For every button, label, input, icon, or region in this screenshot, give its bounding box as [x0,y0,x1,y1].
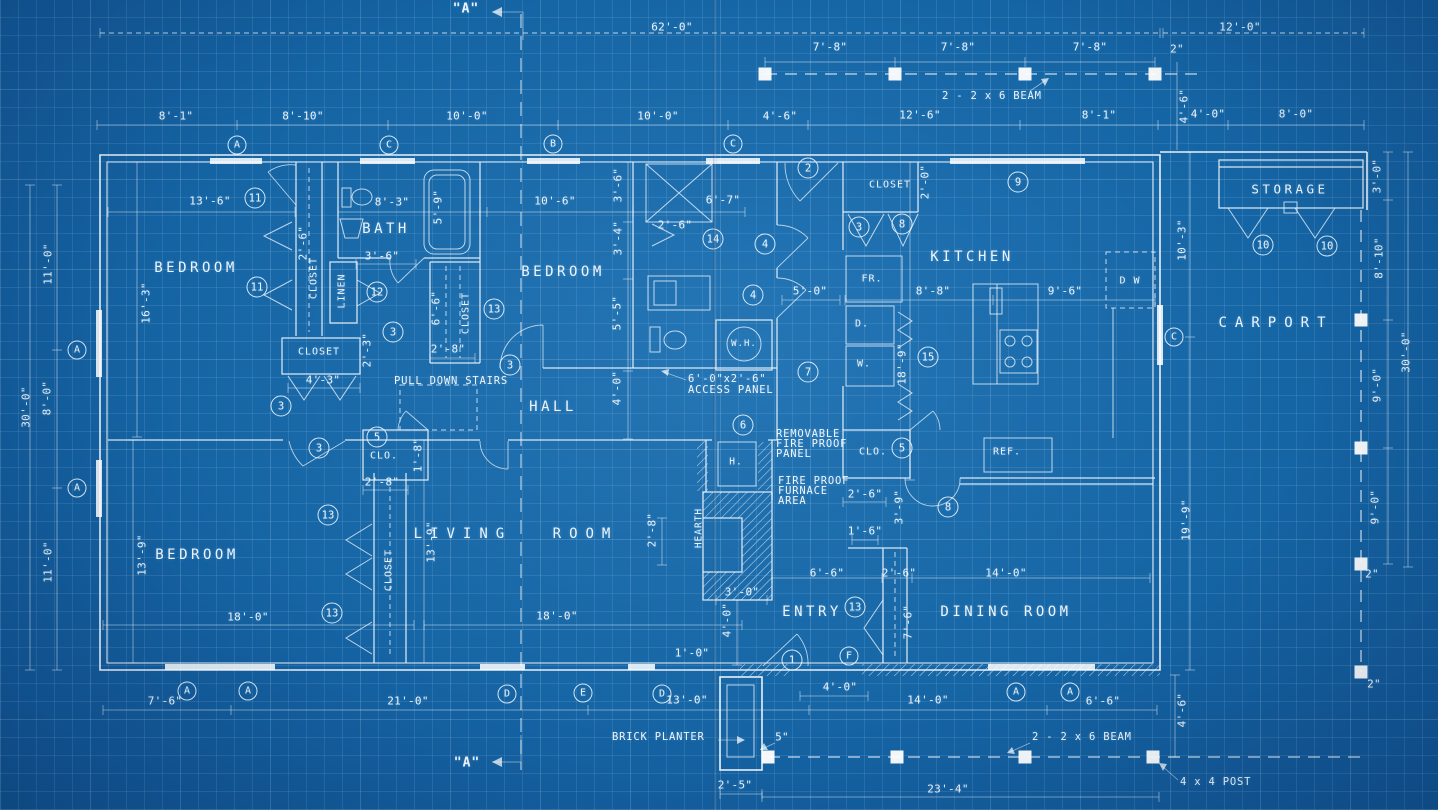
dim-4-6: 4'-6" [763,110,798,123]
post-symbol [1147,751,1160,764]
dim-4-6: 4'-6" [1178,89,1191,124]
door-window-marker-a-14: A [1061,683,1080,702]
dim-5-0: 5'-0" [793,285,828,298]
keynote-marker-10-40: 10 [1253,235,1274,256]
label-d: D. [855,319,869,330]
bath-sink [340,219,363,238]
window-symbol [210,158,262,164]
note-4-x-4-post: 4 x 4 POST [1180,776,1251,788]
dim-7-8: 7'-8" [1073,41,1108,54]
post-symbol [1019,68,1032,81]
window-symbol [96,310,102,377]
keynote-marker-15-30: 15 [918,347,939,368]
dim-11-0: 11'-0" [42,243,55,285]
dim-8-1: 8'-1" [159,110,194,123]
door-window-marker-e-10: E [574,684,593,703]
dim-8-10: 8'-10" [1373,237,1386,279]
keynote-marker-14-23: 14 [703,229,724,250]
note-area: AREA [778,495,807,507]
dim-6-7: 6'-7" [706,194,741,207]
window-symbol [1157,305,1163,365]
post-symbol [1355,666,1368,679]
dim-10-0: 10'-0" [446,110,488,123]
blueprint-floor-plan: BEDROOMBEDROOMBEDROOMBATHHALLKITCHENLIVI… [0,0,1438,810]
room-living-room: LIVING ROOM [414,526,619,542]
keynote-marker-7-26: 7 [798,362,819,383]
dim-7-6: 7'-6" [902,605,915,640]
dim-9-0: 9'-0" [1371,368,1384,403]
toilet-bowl [352,189,372,205]
dim-2: 2" [1367,678,1381,691]
keynote-marker-3-27: 3 [383,322,404,343]
door-window-marker-c-3: C [724,135,743,154]
label-ref: REF. [993,447,1021,458]
window-symbol [988,664,1095,670]
keynote-marker-8-17: 8 [892,214,913,235]
dim-7-8: 7'-8" [941,41,976,54]
dim-1-6: 1'-6" [848,525,883,538]
dim-14-0: 14'-0" [985,567,1027,580]
door-window-marker-d-9: D [498,685,517,704]
floor-plan-drawing [0,0,1438,810]
label-closet: CLOSET [461,292,472,334]
note-pull-down-stairs: PULL DOWN STAIRS [394,375,508,387]
door-window-marker-a-0: A [228,136,247,155]
dim-8-1: 8'-1" [1082,109,1117,122]
dim-3-0: 3'-0" [1371,159,1384,194]
hatch-zones [697,441,1160,676]
door-window-marker-f-12: F [840,647,859,666]
dim-5: 5" [775,731,789,744]
label-closet: CLOSET [869,180,911,191]
dim-8-10: 8'-10" [282,110,324,123]
door-window-marker-a-7: A [178,682,197,701]
keynote-marker-6-31: 6 [733,415,754,436]
dim-30-0: 30'-0" [1400,331,1413,373]
post-symbol [889,68,902,81]
note-brick-planter: BRICK PLANTER [612,731,705,743]
dim-18-0: 18'-0" [227,611,269,624]
dim-6-6: 6'-6" [810,567,845,580]
post-symbol [762,751,775,764]
dim-4-0: 4'-0" [823,681,858,694]
closet-doors [264,168,918,658]
dim-14-0: 14'-0" [907,694,949,707]
door-window-marker-a-13: A [1007,683,1026,702]
keynote-marker-1-39: 1 [782,650,803,671]
dim-7-8: 7'-8" [813,41,848,54]
keynote-marker-8-37: 8 [938,497,959,518]
toilet-tank [342,188,351,207]
dim-8-0: 8'-0" [1279,108,1314,121]
dim-13-0: 13'-0" [666,694,708,707]
dim-11-0: 11'-0" [42,541,55,583]
dim-2-6: 2'-6" [848,488,883,501]
dim-1-8: 1'-8" [412,438,425,473]
dim-13-9: 13'-9" [425,521,438,563]
room-kitchen: KITCHEN [930,249,1014,265]
dim-4-3: 4'-3" [306,374,341,387]
room-storage: STORAGE [1251,182,1328,197]
dim-6-6: 6'-6" [1086,695,1121,708]
door-window-marker-b-2: B [544,135,563,154]
dim-2-6: 2'-6" [658,219,693,232]
dim-3-6: 3'-6" [612,168,625,203]
label-closet: CLOSET [384,549,395,591]
window-symbol [360,158,415,164]
label-clo: CLO. [370,451,398,462]
door-window-marker-a-4: A [68,341,87,360]
label-closet: CLOSET [309,257,320,299]
dim-5-5: 5'-5" [611,296,624,331]
window-symbol [96,460,102,517]
brick-planter [720,677,762,770]
dim-8-3: 8'-3" [375,196,410,209]
dim-3-0: 3'-0" [725,586,760,599]
dim-2: 2" [1365,568,1379,581]
dim-9-6: 9'-6" [1048,285,1083,298]
keynote-marker-4-24: 4 [755,234,776,255]
window-symbol [527,158,580,164]
interior-walls [108,162,1155,663]
dim-2-0: 2'-0" [919,165,932,200]
room-entry: ENTRY [782,604,842,620]
dim-4-6: 4'-6" [1176,693,1189,728]
room-hall: HALL [529,399,577,415]
keynote-marker-11-20: 11 [247,277,268,298]
label-fr: FR. [861,274,882,285]
room-bath: BATH [362,221,410,237]
stove [1000,330,1037,373]
label-w: W. [857,359,871,370]
keynote-marker-13-22: 13 [484,299,505,320]
label-linen: LINEN [337,273,348,308]
post-symbol [1355,314,1368,327]
keynote-marker-10-41: 10 [1317,236,1338,257]
post-symbol [759,68,772,81]
keynote-marker-3-16: 3 [849,217,870,238]
keynote-marker-3-29: 3 [500,355,521,376]
keynote-marker-9-18: 9 [1008,172,1029,193]
dim-21-0: 21'-0" [387,695,429,708]
exterior-walls [100,155,1160,670]
dim-13-9: 13'-9" [136,534,149,576]
room-bedroom: BEDROOM [154,260,238,276]
dim-1-0: 1'-0" [675,647,710,660]
label-h: H. [729,457,742,468]
dim-4-0: 4'-0" [611,371,624,406]
dim-19-9: 19'-9" [1180,499,1193,541]
keynote-marker-13-35: 13 [322,603,343,624]
label-closet: CLOSET [298,347,340,358]
keynote-marker-4-25: 4 [743,285,764,306]
keynote-marker-13-38: 13 [845,597,866,618]
section-mark-a: "A" [454,756,480,771]
note-access-panel: ACCESS PANEL [688,384,773,396]
door-window-marker-c-6: C [1165,328,1184,347]
dim-62-0: 62'-0" [651,21,693,34]
post-symbol [891,751,904,764]
toilet2-tank [650,327,660,352]
dim-2-8: 2'-8" [646,513,659,548]
room-bedroom: BEDROOM [155,547,239,563]
note-2-2-x-6-beam: 2 - 2 x 6 BEAM [942,90,1042,102]
window-symbol [950,158,1085,164]
dim-7-6: 7'-6" [148,695,183,708]
door-window-marker-d-11: D [653,685,672,704]
dim-16-3: 16'-3" [140,282,153,324]
dim-10-6: 10'-6" [534,195,576,208]
dim-2-5: 2'-5" [718,779,753,792]
kitchen-island [973,284,1038,384]
label-w-h: W.H. [731,339,757,349]
dryer [846,306,894,344]
dim-9-0: 9'-0" [1369,490,1382,525]
post-symbol [1355,442,1368,455]
label-clo: CLO. [859,447,887,458]
label-d-w: D W [1119,276,1140,287]
note-2-2-x-6-beam: 2 - 2 x 6 BEAM [1032,731,1132,743]
dim-3-9: 3'-9" [893,490,906,525]
fixtures [340,164,1155,770]
dim-4-0: 4'-0" [721,603,734,638]
dim-12-6: 12'-6" [899,109,941,122]
room-carport: CARPORT [1218,315,1333,331]
keynote-marker-11-19: 11 [245,188,266,209]
window-symbol [628,664,655,670]
door-window-marker-a-8: A [239,682,258,701]
dim-8-0: 8'-0" [41,381,54,416]
note-panel: PANEL [776,448,812,460]
dim-10-3: 10'-3" [1176,219,1189,261]
keynote-marker-5-32: 5 [367,427,388,448]
dim-3-6: 3'-6" [365,250,400,263]
label-hearth: HEARTH [694,508,705,548]
post-symbol [1149,68,1162,81]
dim-30-0: 30'-0" [20,386,33,428]
post-symbol [1019,751,1032,764]
keynote-marker-2-15: 2 [798,158,819,179]
window-symbol [165,664,275,670]
dim-2-8: 2'-8" [431,343,466,356]
room-bedroom: BEDROOM [521,264,605,280]
keynote-marker-3-28: 3 [271,396,292,417]
keynote-marker-13-34: 13 [318,505,339,526]
dim-4-0: 4'-0" [1191,108,1226,121]
dim-8-8: 8'-8" [916,285,951,298]
dim-12-0: 12'-0" [1219,21,1261,34]
dim-18-0: 18'-0" [536,610,578,623]
door-window-marker-a-5: A [68,479,87,498]
dim-23-4: 23'-4" [927,783,969,796]
dim-13-6: 13'-6" [189,195,231,208]
room-dining-room: DINING ROOM [940,604,1071,620]
window-symbol [480,664,525,670]
dim-6-6: 6'-6" [430,291,443,326]
carport-storage [1160,152,1367,672]
window-symbol [706,158,760,164]
dim-2-6: 2'-6" [882,567,917,580]
dim-5-9: 5'-9" [432,190,445,225]
door-window-marker-c-1: C [380,136,399,155]
dim-10-0: 10'-0" [637,110,679,123]
keynote-marker-12-21: 12 [367,282,388,303]
dim-2-6: 2'-6" [297,226,310,261]
section-mark-a: "A" [453,2,479,17]
toilet2-bowl [664,331,686,349]
dim-3-4: 3'-4" [612,221,625,256]
dim-2: 2" [1170,43,1184,56]
keynote-marker-3-33: 3 [309,438,330,459]
dim-2-8: 2'-8" [365,476,400,489]
dim-18-9: 18'-9" [896,343,909,385]
keynote-marker-5-36: 5 [892,438,913,459]
dim-2-3: 2'-3" [361,333,374,368]
